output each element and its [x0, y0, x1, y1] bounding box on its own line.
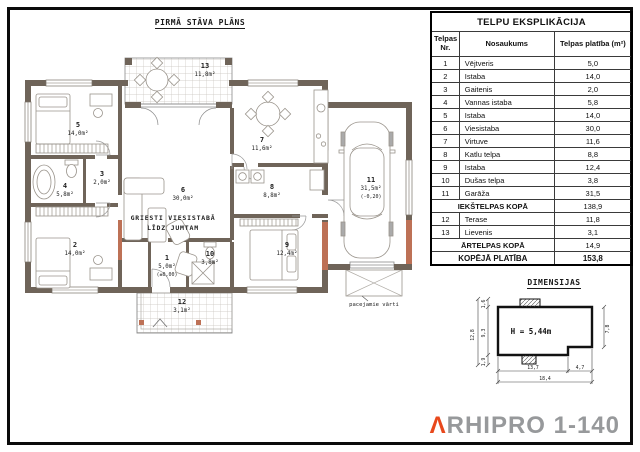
boiler-icon [310, 170, 324, 190]
closet-icon [240, 219, 298, 226]
svg-text:10: 10 [206, 250, 214, 258]
svg-text:4: 4 [63, 182, 67, 190]
desk-icon [90, 256, 112, 281]
column-header-area: Telpas platība (m²) [554, 32, 632, 57]
logo-text: RHIPRO 1-140 [447, 412, 620, 439]
bed-icon [36, 94, 70, 144]
terrace-doors [141, 104, 216, 125]
table-title: TELPU EKSPLIKĀCIJA [431, 12, 632, 32]
dimensions-block: DIMENSIJAS H = 5,44m [468, 278, 640, 394]
svg-text:3: 3 [100, 170, 104, 178]
bed-icon [36, 238, 70, 288]
svg-text:7: 7 [260, 136, 264, 144]
table-header-row: Telpas Nr. Nosaukums Telpas platība (m²) [431, 32, 632, 57]
table-row: 13Lievenis3,1 [431, 226, 632, 239]
svg-text:8: 8 [270, 183, 274, 191]
dim-left-top: 1,6 [481, 300, 487, 309]
svg-text:30,0m²: 30,0m² [173, 195, 194, 202]
column-header-nr: Telpas Nr. [431, 32, 459, 57]
svg-text:(-0,20): (-0,20) [360, 194, 381, 200]
dim-right: 7,8 [605, 325, 611, 334]
dim-bottom-ext: 4,7 [576, 365, 585, 371]
closet-icon [36, 144, 108, 153]
dim-left-main: 9,3 [481, 329, 487, 338]
svg-text:11,8m²: 11,8m² [195, 71, 216, 78]
table-row: 5Istaba14,0 [431, 109, 632, 122]
terrace [125, 57, 232, 104]
svg-text:3,1m²: 3,1m² [173, 307, 190, 314]
svg-text:12,4m²: 12,4m² [277, 250, 298, 257]
room-label-5: 5 14,0m² [68, 121, 89, 137]
dim-left-total: 12,8 [470, 329, 476, 341]
table-row: 9Istaba12,4 [431, 161, 632, 174]
bathtub-icon [33, 165, 55, 199]
svg-text:9: 9 [285, 241, 289, 249]
floor-plan: pacejamie vārti [10, 10, 450, 410]
svg-text:11: 11 [367, 176, 375, 184]
room-label-6: 6 30,0m² [173, 186, 194, 202]
table-row: 2Istaba14,0 [431, 70, 632, 83]
col-nr-line2: Nr. [440, 43, 450, 52]
table-row: 6Viesistaba30,0 [431, 122, 632, 135]
room-label-7: 7 11,6m² [252, 136, 273, 152]
svg-text:LĪDZ JUMTAM: LĪDZ JUMTAM [147, 223, 199, 232]
table-row: 4Vannas istaba5,8 [431, 96, 632, 109]
svg-text:2: 2 [73, 241, 77, 249]
svg-text:2,0m²: 2,0m² [93, 179, 110, 186]
dim-left-bottom: 1,9 [481, 358, 487, 367]
svg-text:14,0m²: 14,0m² [65, 250, 86, 257]
gate-label: pacejamie vārti [349, 302, 399, 308]
garage-gate: pacejamie vārti [346, 262, 402, 308]
table-row: 7Virtuve11,6 [431, 135, 632, 148]
table-row: 1Vējtveris5,0 [431, 57, 632, 70]
svg-text:5: 5 [76, 121, 80, 129]
drawing-sheet: PIRMĀ STĀVA PLĀNS [0, 0, 640, 452]
washer-icon [251, 170, 264, 183]
svg-text:1: 1 [165, 254, 169, 262]
svg-text:14,0m²: 14,0m² [68, 130, 89, 137]
room-label-4: 4 5,8m² [56, 182, 73, 198]
sheet-frame: PIRMĀ STĀVA PLĀNS [7, 7, 633, 445]
table-row: 8Katlu telpa8,8 [431, 148, 632, 161]
svg-text:5,8m²: 5,8m² [56, 191, 73, 198]
dining-table-icon [245, 91, 290, 136]
dimensions-diagram: H = 5,44m 12,8 1,6 9,3 1,9 7,8 13, [468, 289, 640, 389]
room-label-1: 1 5,0m² (±0,00) [156, 254, 177, 278]
svg-text:GRIESTI VIESISTABĀ: GRIESTI VIESISTABĀ [131, 213, 216, 222]
furniture [33, 90, 395, 288]
svg-text:3,8m²: 3,8m² [201, 259, 218, 266]
kitchen-counter-icon [314, 90, 328, 163]
table-title-row: TELPU EKSPLIKĀCIJA [431, 12, 632, 32]
desk-icon [90, 94, 112, 118]
table-subtotal-row: IEKŠTELPAS KOPĀ138,9 [431, 200, 632, 213]
column-header-name: Nosaukums [459, 32, 554, 57]
svg-text:12: 12 [178, 298, 186, 306]
svg-text:13: 13 [201, 62, 209, 70]
table-row: 10Dušas telpa3,8 [431, 174, 632, 187]
room-explication-table: TELPU EKSPLIKĀCIJA Telpas Nr. Nosaukums … [430, 11, 633, 266]
arhipro-logo: ΛRHIPRO 1-140 [430, 414, 620, 438]
porch-stub [522, 355, 536, 364]
table-row: 12Terase11,8 [431, 213, 632, 226]
dim-bottom-main: 13,7 [527, 365, 539, 371]
room-label-8: 8 8,8m² [263, 183, 280, 199]
svg-text:5,0m²: 5,0m² [158, 263, 175, 270]
logo-mark: Λ [430, 412, 447, 439]
washer-icon [236, 170, 249, 183]
svg-text:11,6m²: 11,6m² [252, 145, 273, 152]
table-total-row: KOPĒJĀ PLATĪBA153,8 [431, 252, 632, 266]
height-label: H = 5,44m [511, 327, 552, 336]
room-label-3: 3 2,0m² [93, 170, 110, 186]
dimensions-title: DIMENSIJAS [468, 278, 640, 287]
svg-text:31,5m²: 31,5m² [361, 185, 382, 192]
svg-text:6: 6 [181, 186, 185, 194]
svg-text:8,8m²: 8,8m² [263, 192, 280, 199]
closet-icon [36, 207, 108, 216]
table-row: 3Gaitenis2,0 [431, 83, 632, 96]
toilet-icon [65, 160, 78, 178]
dim-bottom-total: 18,4 [539, 376, 551, 382]
svg-text:(±0,00): (±0,00) [156, 272, 177, 278]
table-subtotal-row: ĀRTELPAS KOPĀ14,9 [431, 239, 632, 252]
terrace-stub [520, 299, 540, 307]
table-row: 11Garāža31,5 [431, 187, 632, 200]
dimensions-title-text: DIMENSIJAS [527, 278, 580, 289]
